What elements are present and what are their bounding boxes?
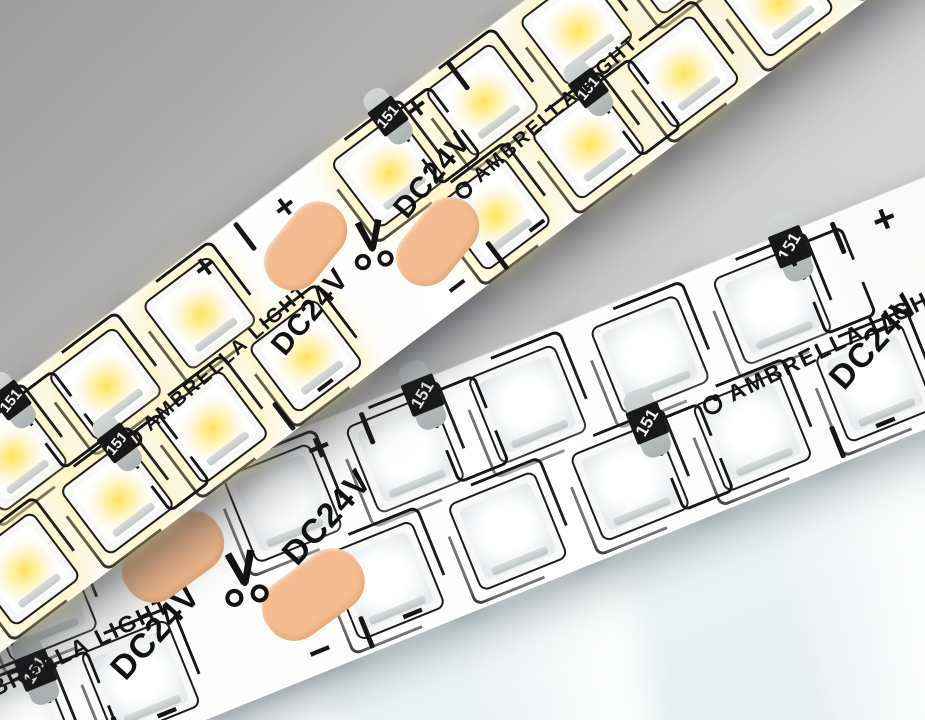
- resistor-code-label: 151: [407, 378, 439, 413]
- product-photo-stage: 151151151151151151151AMBRELLA LIGHTAMBRE…: [0, 0, 925, 720]
- led-emitter-window: [601, 305, 700, 404]
- resistor-body: 151: [0, 379, 32, 421]
- led-electrode: [510, 419, 569, 449]
- led-emitter-window: [458, 482, 557, 581]
- led-electrode: [17, 572, 62, 608]
- led-electrode: [677, 75, 722, 111]
- led-electrode: [111, 501, 156, 537]
- led-emitter-window: [625, 0, 717, 4]
- resistor-code-label: 151: [0, 385, 26, 415]
- polarity-tick: [233, 222, 257, 252]
- led-chip: [446, 470, 568, 592]
- led-emitter-window: [731, 0, 823, 47]
- scissors-cut-icon: [343, 215, 400, 272]
- scissors-glyph: [343, 215, 400, 272]
- led-emitter-window: [0, 523, 69, 615]
- scissors-cut-icon: [211, 545, 276, 610]
- led-electrode: [613, 496, 672, 526]
- led-electrode: [582, 146, 627, 182]
- led-electrode: [771, 4, 816, 40]
- led-electrode: [205, 430, 250, 466]
- resistor-code-label: 151: [632, 406, 664, 441]
- led-electrode: [735, 447, 794, 477]
- scissors-glyph: [211, 545, 276, 610]
- led-electrode: [388, 469, 447, 499]
- led-electrode: [490, 546, 549, 576]
- resistor-code-label: 151: [374, 101, 403, 131]
- polarity-plus-label: +: [866, 196, 903, 242]
- led-electrode: [5, 459, 50, 495]
